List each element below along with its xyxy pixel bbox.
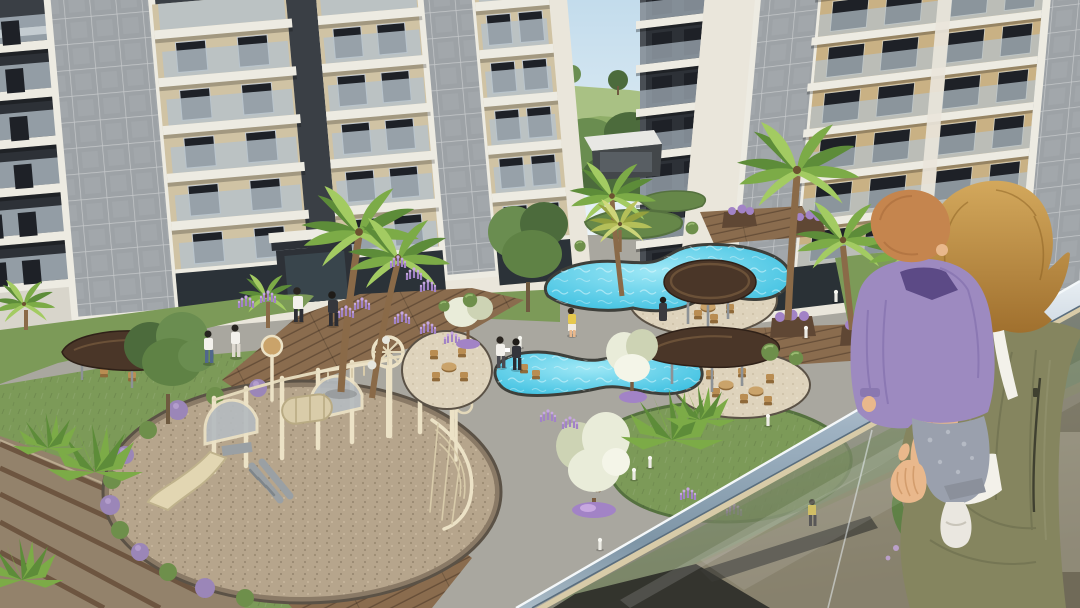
person-dark-figure	[659, 297, 667, 321]
baby-hand	[862, 396, 876, 412]
render-viewport	[0, 0, 1080, 608]
architectural-render	[0, 0, 1080, 608]
sphere-lamp	[368, 361, 377, 370]
